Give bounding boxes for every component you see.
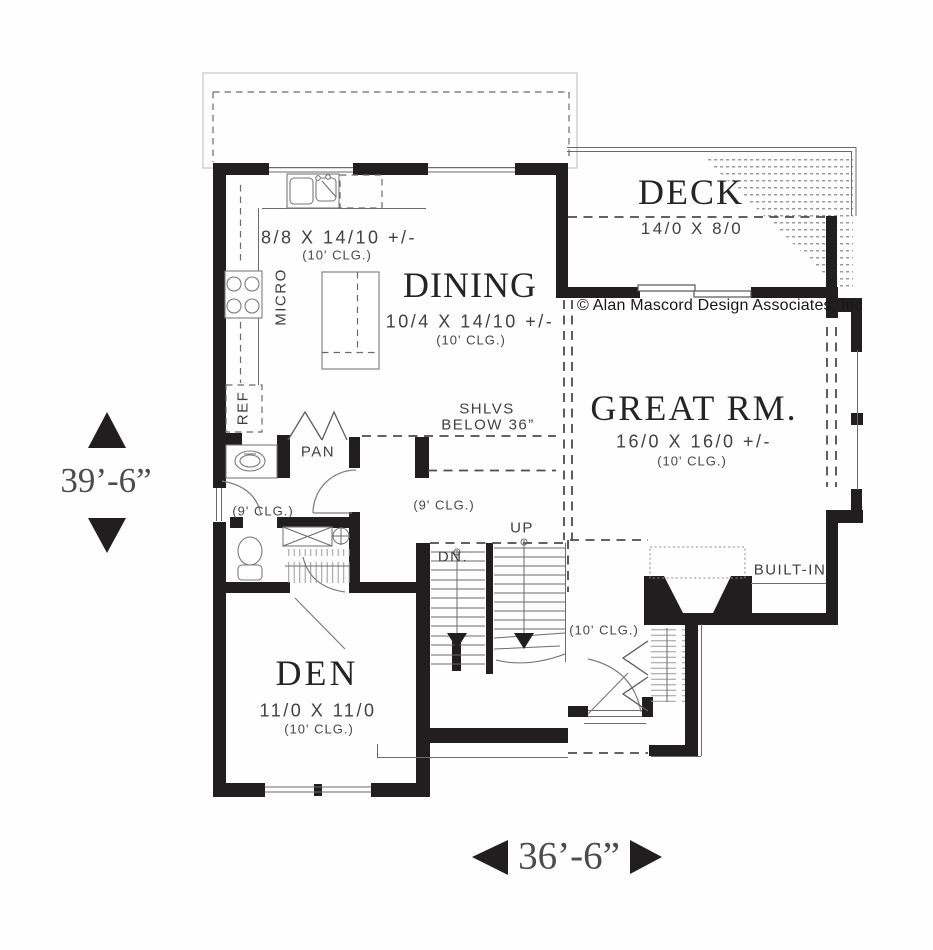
pantry-bifold-door [288,412,347,440]
horizontal-dimension-label: 36’-6” [518,834,620,879]
den-dims-label: 11/0 X 11/0 [260,701,377,722]
entry-door [588,673,628,714]
dim-arrow-right-icon [630,840,662,874]
deck-label: DECK [638,171,744,213]
laundry-fixtures [283,527,349,546]
vertical-dimension-label: 39’-6” [60,461,151,501]
roof-outline [203,73,577,168]
toilet [238,537,262,565]
dining-room-label: DINING [403,264,537,306]
great-room-dims-label: 16/0 X 16/0 +/- [616,432,772,453]
entry-ceiling-label: (10' CLG.) [569,623,639,638]
kitchen-ceiling-label: (10' CLG.) [302,248,372,263]
dining-hall-door [313,470,356,513]
shelves-label-line1: SHLVS [459,401,515,418]
kitchen-dims-label: 8/8 X 14/10 +/- [261,228,417,249]
shelves-label-line2: BELOW 36” [441,417,535,434]
den-label: DEN [276,652,359,694]
stair-down-arrow-icon [447,633,467,649]
entry-closet-hangers [651,628,685,702]
floor-plan: 8/8 X 14/10 +/- (10' CLG.) MICRO REF PAN… [0,0,933,950]
built-in-label: BUILT-IN [754,562,827,579]
ceiling-dashed-lines [362,300,836,753]
copyright-label: © Alan Mascord Design Associates, Inc [577,297,863,315]
dimension-arrows [88,412,662,875]
dim-arrow-left-icon [472,840,508,875]
dining-dims-label: 10/4 X 14/10 +/- [386,312,555,333]
hall-ceiling-right-label: (9' CLG.) [413,498,474,513]
kitchen-fixtures [225,174,426,432]
dining-ceiling-label: (10' CLG.) [436,333,506,348]
dim-arrow-down-icon [88,518,126,553]
stairs-up-label: UP [510,520,534,537]
pantry-label: PAN [301,444,335,461]
microwave-label: MICRO [273,268,290,326]
sliding-door [638,285,695,291]
hall-ceiling-left-label: (9' CLG.) [232,504,293,519]
deck-outline [567,147,856,287]
great-room-label: GREAT RM. [590,387,797,429]
dim-arrow-up-icon [88,412,126,448]
den-ceiling-label: (10' CLG.) [284,722,354,737]
deck-dims-label: 14/0 X 8/0 [641,219,744,239]
upper-cabinet [340,175,382,208]
stair-down-arrow-icon [514,633,534,649]
hearth [650,547,745,578]
stairs-down-label: DN. [438,549,468,566]
den-door [295,598,345,649]
kitchen-island [322,272,379,369]
great-room-ceiling-label: (10' CLG.) [657,454,727,469]
refrigerator-label: REF [235,391,252,426]
